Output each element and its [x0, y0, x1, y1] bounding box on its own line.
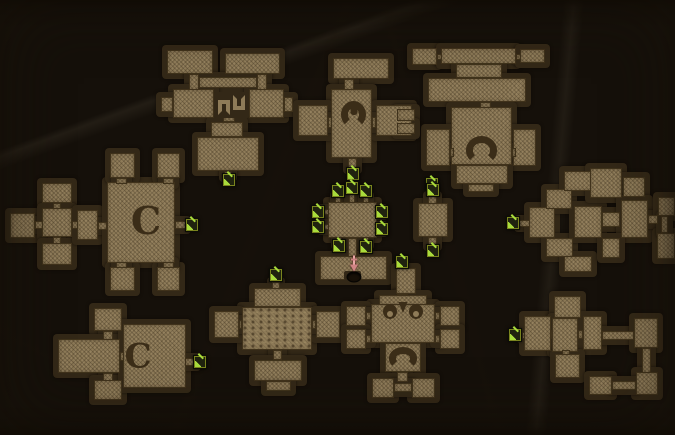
hook-corridor-glyph	[214, 92, 249, 118]
bottom-right-dungeon-room	[642, 348, 651, 373]
map-link-icon[interactable]	[222, 173, 236, 187]
top-left-dungeon-room	[257, 74, 267, 90]
ring-glyph	[341, 101, 366, 128]
arrow-tail	[400, 253, 406, 259]
bottom-right-dungeon-room	[583, 316, 602, 350]
hook-right	[233, 95, 245, 110]
far-right-dungeon-room	[529, 207, 555, 238]
bottom-mid-dungeon-room	[440, 329, 460, 349]
mid-left-dungeon-room	[163, 262, 174, 268]
bottom-mid-dungeon-room	[346, 306, 366, 326]
far-right-dungeon-room	[602, 238, 620, 258]
top-right-dungeon-room	[512, 148, 516, 157]
map-link-icon[interactable]	[311, 205, 325, 219]
arrow-head	[361, 190, 367, 196]
bottom-left-dungeon-room	[94, 308, 122, 331]
mid-left-dungeon-room	[98, 222, 107, 230]
arrow-tail	[430, 175, 436, 181]
bottom-right-dungeon-room	[552, 318, 578, 352]
arrow-tail	[336, 182, 342, 188]
mid-left-dungeon-room	[116, 178, 127, 184]
mid-left-dungeon-room	[157, 153, 180, 178]
map-canvas: CC	[0, 0, 675, 435]
bottom-left-dungeon-room	[58, 339, 120, 373]
bottom-right-dungeon-room	[636, 372, 658, 395]
arrow-head	[361, 246, 367, 252]
arrow-head	[397, 261, 403, 267]
bottom-midleft-dungeon-room	[254, 360, 302, 381]
right-single-room-room	[418, 203, 448, 237]
bottom-right-dungeon-room	[602, 331, 634, 340]
dungeon-map: CC	[0, 0, 675, 435]
bottom-midleft-dungeon-room	[242, 307, 312, 350]
arrow-head	[313, 211, 319, 217]
arrow-head	[428, 250, 434, 256]
arrow-head	[377, 211, 383, 217]
bottom-mid-dungeon-room	[394, 383, 412, 392]
dagger-guard	[351, 259, 357, 261]
arrow-tail	[198, 353, 204, 359]
arrow-head	[377, 228, 383, 234]
far-right-dungeon-room	[657, 233, 675, 259]
mid-left-dungeon-letter: C	[131, 202, 161, 240]
top-left-dungeon-room	[189, 74, 199, 90]
top-left-dungeon-room	[173, 89, 214, 118]
map-link-icon[interactable]	[508, 328, 522, 342]
bottom-midleft-dungeon-room	[312, 320, 316, 329]
top-mid-dungeon-room	[328, 117, 332, 128]
bottom-left-dungeon-room	[94, 380, 122, 400]
far-right-dungeon-room	[623, 177, 645, 197]
top-right-dungeon-room	[520, 49, 545, 63]
horseshoe-glyph	[389, 347, 417, 369]
map-link-icon[interactable]	[332, 239, 346, 253]
ring-knob	[350, 105, 357, 115]
arrow-head	[271, 274, 277, 280]
mid-left-dungeon-room	[110, 153, 135, 178]
bottom-mid-dungeon-room	[396, 268, 416, 294]
bottom-right-dungeon-room	[555, 354, 580, 378]
bottom-midleft-dungeon-room	[214, 311, 239, 338]
top-left-dungeon-room	[284, 97, 293, 112]
far-right-dungeon-room	[648, 215, 658, 224]
arrow-head	[333, 190, 339, 196]
map-link-icon[interactable]	[311, 220, 325, 234]
arrow-tail	[274, 266, 280, 272]
bottom-right-dungeon-room	[524, 316, 551, 351]
bottom-mid-dungeon-room	[366, 335, 371, 343]
top-right-dungeon-room	[450, 148, 454, 157]
map-link-icon[interactable]	[346, 167, 360, 181]
map-link-icon[interactable]	[193, 355, 207, 369]
top-mid-dungeon-room	[298, 105, 328, 136]
mid-left-dungeon-room	[163, 178, 174, 184]
map-link-icon[interactable]	[359, 240, 373, 254]
mid-left-dungeon-room	[77, 210, 98, 240]
bottom-mid-dungeon-room	[346, 329, 366, 349]
bottom-mid-dungeon-room	[397, 372, 408, 382]
arrow-tail	[364, 182, 370, 188]
far-right-dungeon-room	[564, 171, 592, 191]
bottom-midleft-dungeon-room	[266, 381, 291, 391]
far-right-dungeon-room	[621, 200, 648, 238]
map-link-icon[interactable]	[185, 218, 199, 232]
bottom-mid-dungeon-room	[366, 312, 371, 320]
top-right-dungeon-room	[412, 48, 437, 65]
map-link-icon[interactable]	[375, 222, 389, 236]
top-left-dungeon-room	[249, 89, 284, 118]
arrow-head	[428, 189, 434, 195]
curl-face-glyph	[382, 301, 424, 323]
bottom-mid-dungeon-room	[372, 378, 394, 398]
far-right-dungeon-room	[590, 168, 622, 198]
map-link-icon[interactable]	[395, 255, 409, 269]
bottom-midleft-dungeon-room	[316, 311, 340, 338]
far-right-dungeon-room	[546, 238, 573, 257]
map-link-icon[interactable]	[375, 205, 389, 219]
top-mid-dungeon-room	[372, 117, 376, 128]
far-right-dungeon-room	[564, 256, 592, 272]
mid-left-dungeon-room	[157, 267, 180, 291]
top-left-dungeon-room	[211, 122, 243, 137]
arrow-head	[334, 245, 340, 251]
arrow-tail	[190, 216, 196, 222]
map-link-icon[interactable]	[426, 244, 440, 258]
top-left-dungeon-room	[225, 53, 280, 74]
bottom-left-dungeon-letter: C	[124, 339, 151, 373]
arrow-head	[508, 222, 514, 228]
top-right-dungeon-room	[441, 48, 516, 64]
mid-left-dungeon-room	[110, 267, 135, 291]
bottom-mid-dungeon-room	[412, 378, 435, 398]
arrow-head	[224, 179, 230, 185]
bottom-midleft-dungeon-room	[273, 350, 282, 360]
bottom-right-dungeon-room	[634, 318, 658, 348]
top-right-dungeon-room	[513, 129, 536, 166]
map-link-icon[interactable]	[345, 181, 359, 195]
far-right-dungeon-room	[661, 216, 668, 233]
fang-arrow	[399, 302, 408, 313]
horseshoe-glyph	[466, 136, 497, 164]
top-right-dungeon-room	[428, 78, 526, 102]
curl-right	[409, 304, 423, 319]
arrow-head	[347, 187, 353, 193]
right-single-room-room	[428, 196, 437, 204]
arrow-head	[313, 226, 319, 232]
bottom-right-dungeon-room	[612, 381, 636, 390]
top-left-dungeon-room	[167, 50, 213, 74]
mid-left-dungeon-room	[10, 213, 35, 238]
bottom-mid-dungeon-room	[435, 335, 440, 343]
mini-pair-rooms-room	[397, 123, 415, 134]
bottom-right-dungeon-room	[589, 376, 612, 395]
dagger-point	[350, 265, 358, 272]
arrow-head	[187, 224, 193, 230]
bottom-mid-dungeon-room	[440, 306, 460, 326]
hook-left	[218, 100, 230, 115]
center-hub-room	[328, 202, 377, 238]
bottom-midleft-dungeon-room	[239, 320, 242, 329]
center-hub-room	[348, 238, 357, 257]
map-link-icon[interactable]	[506, 216, 520, 230]
bottom-midleft-dungeon-room	[254, 288, 301, 307]
top-left-dungeon-room	[197, 137, 259, 171]
arrow-head	[510, 334, 516, 340]
top-right-dungeon-room	[426, 129, 450, 166]
top-right-dungeon-room	[456, 165, 508, 184]
far-right-dungeon-room	[574, 206, 602, 238]
center-hub-room	[349, 194, 355, 203]
map-link-icon[interactable]	[426, 183, 440, 197]
top-left-dungeon-room	[199, 77, 257, 88]
mini-pair-rooms-room	[397, 109, 415, 121]
top-right-dungeon-room	[456, 64, 502, 78]
mid-left-dungeon-room	[42, 183, 72, 203]
start-point-icon	[349, 256, 359, 273]
top-left-dungeon-room	[161, 97, 173, 112]
bottom-right-dungeon-room	[554, 296, 581, 318]
far-right-dungeon-room	[546, 189, 572, 209]
top-right-dungeon-room	[468, 184, 494, 192]
map-link-icon[interactable]	[359, 184, 373, 198]
bottom-mid-dungeon-room	[435, 312, 440, 320]
far-right-dungeon-room	[602, 212, 620, 227]
curl-left	[383, 304, 397, 319]
floor-hole-icon	[347, 272, 362, 283]
far-right-dungeon-room	[658, 197, 675, 216]
mid-left-dungeon-room	[42, 243, 72, 265]
top-mid-dungeon-room	[333, 58, 389, 79]
map-link-icon[interactable]	[269, 268, 283, 282]
map-link-icon[interactable]	[331, 184, 345, 198]
mid-left-dungeon-room	[116, 262, 127, 268]
mid-left-dungeon-room	[42, 208, 72, 237]
arrow-head	[195, 361, 201, 367]
